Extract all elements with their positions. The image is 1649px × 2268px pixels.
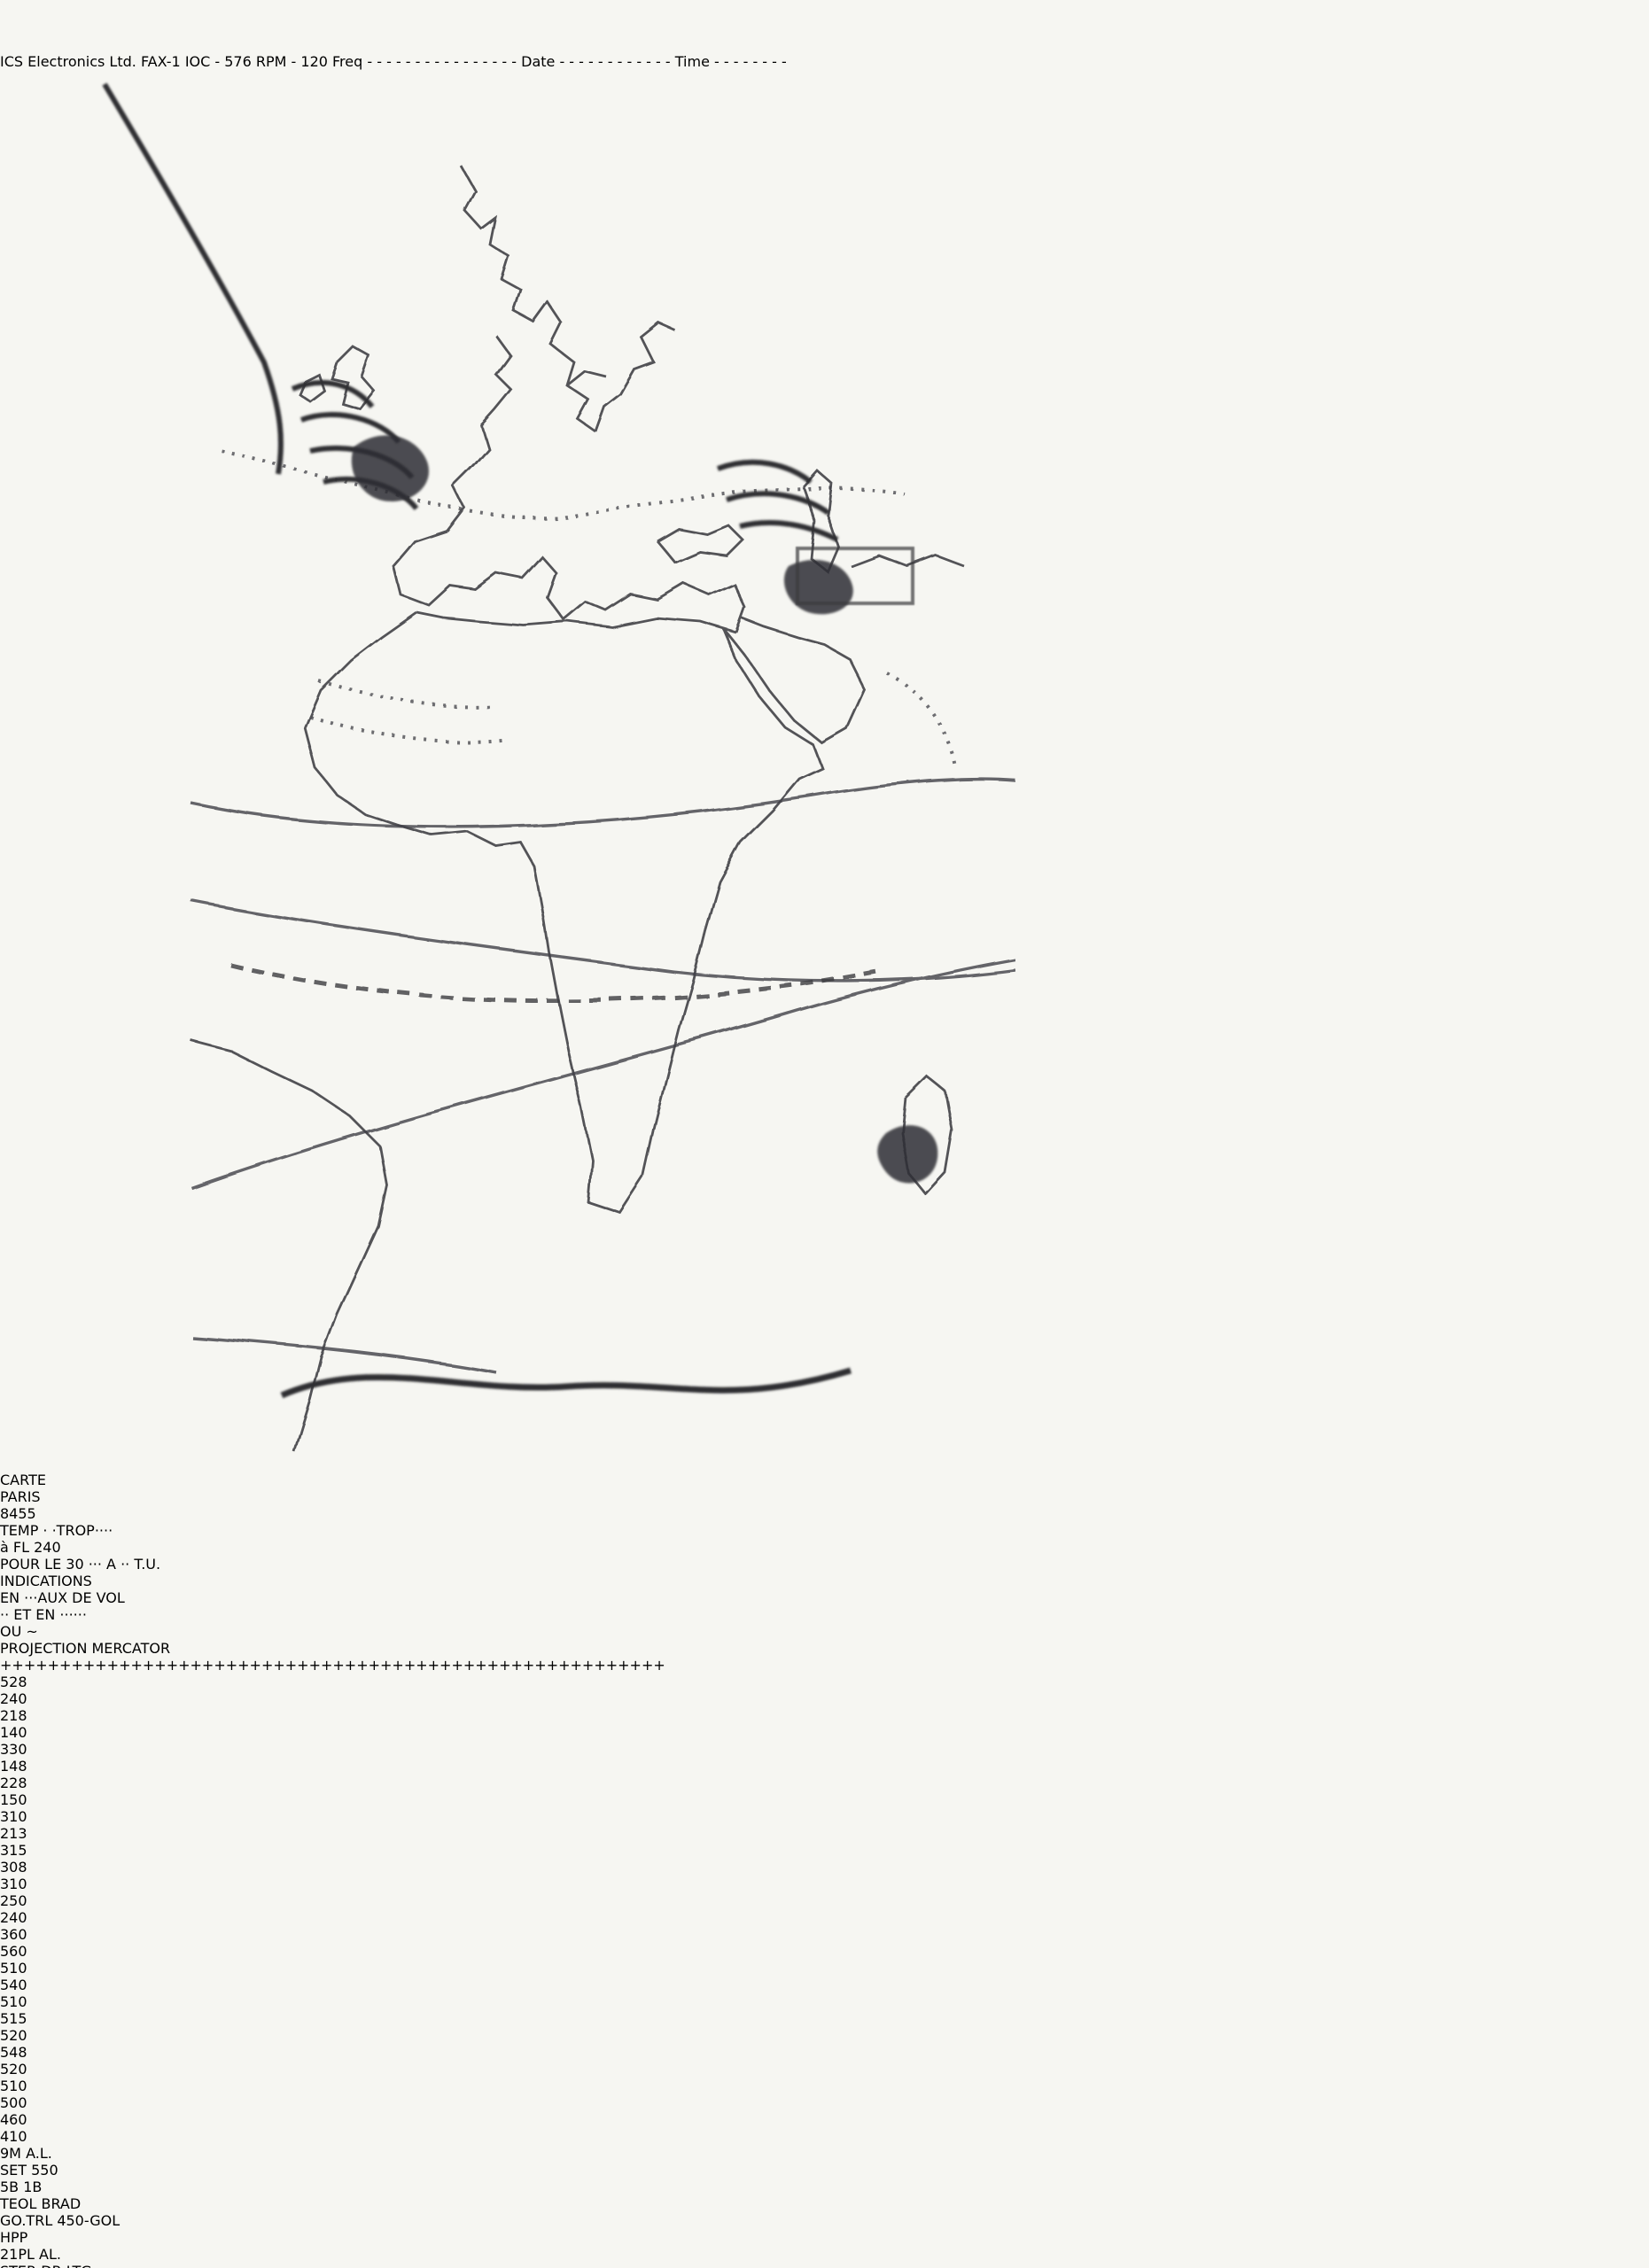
grid-cross: +	[226, 1657, 237, 1674]
grid-cross: +	[143, 1657, 154, 1674]
grid-cross: +	[309, 1657, 321, 1674]
grid-cross: +	[547, 1657, 558, 1674]
projection-label: PROJECTION MERCATOR	[0, 1640, 1649, 1657]
grid-cross: +	[285, 1657, 297, 1674]
map-annotation: SET 550	[0, 2162, 1649, 2179]
map-value-box: 308	[0, 1859, 1649, 1876]
map-value-box: 500	[0, 2094, 1649, 2111]
map-value-box: 240	[0, 1690, 1649, 1707]
grid-cross: +	[510, 1657, 522, 1674]
map-value-box: 460	[0, 2111, 1649, 2128]
map-value-box: 548	[0, 2044, 1649, 2061]
map-value-box: 540	[0, 1977, 1649, 1993]
grid-cross: +	[451, 1657, 463, 1674]
grid-cross: +	[261, 1657, 273, 1674]
front-scribbles	[105, 84, 851, 1395]
grid-cross: +	[191, 1657, 202, 1674]
grid-cross: +	[606, 1657, 618, 1674]
map-annotation: 9M A.L.	[0, 2145, 1649, 2162]
scan-ink-blob	[0, 35, 115, 53]
scanned-fax-page: ICS Electronics Ltd. FAX-1 IOC - 576 RPM…	[0, 0, 1649, 2268]
map-value-box: 510	[0, 2078, 1649, 2094]
grid-cross: +	[321, 1657, 332, 1674]
map-annotation: TEOL BRAD	[0, 2195, 1649, 2212]
map-value-box: 330	[0, 1741, 1649, 1758]
map-value-box: 528	[0, 1674, 1649, 1690]
grid-cross: +	[499, 1657, 510, 1674]
grid-cross: +	[12, 1657, 23, 1674]
grid-cross: +	[653, 1657, 665, 1674]
grid-cross: +	[95, 1657, 106, 1674]
legend-line: POUR LE 30 ··· A ·· T.U.	[0, 1556, 1649, 1573]
grid-cross: +	[439, 1657, 451, 1674]
grid-cross: +	[618, 1657, 629, 1674]
grid-cross: +	[416, 1657, 427, 1674]
map-value-box: 510	[0, 1960, 1649, 1977]
grid-cross: +	[273, 1657, 284, 1674]
legend-station-line1: CARTE	[0, 1472, 1649, 1488]
grid-cross: +	[642, 1657, 653, 1674]
grid-cross: +	[237, 1657, 249, 1674]
map-value-box: 250	[0, 1892, 1649, 1909]
grid-cross: +	[380, 1657, 392, 1674]
map-value-box: 520	[0, 2027, 1649, 2044]
grid-cross: +	[214, 1657, 225, 1674]
map-value-box: 360	[0, 1926, 1649, 1943]
grid-cross: +	[83, 1657, 95, 1674]
weather-map-frame: CARTE PARIS 8455 TEMP · ·TROP····à FL 24…	[0, 70, 1649, 2268]
grid-cross: +	[571, 1657, 582, 1674]
map-value-box: 510	[0, 1993, 1649, 2010]
grid-cross: +	[345, 1657, 356, 1674]
legend-line: OU ~	[0, 1623, 1649, 1640]
map-annotation: 410	[0, 2128, 1649, 2145]
grid-cross: +	[297, 1657, 308, 1674]
legend-header: CARTE PARIS 8455	[0, 1472, 1649, 1522]
grid-cross: +	[534, 1657, 546, 1674]
grid-cross: +	[0, 1657, 12, 1674]
grid-cross: +	[35, 1657, 47, 1674]
grid-cross: +	[107, 1657, 119, 1674]
map-value-box: 515	[0, 2010, 1649, 2027]
grid-cross: +	[594, 1657, 605, 1674]
grid-cross: +	[48, 1657, 59, 1674]
map-value-box: 310	[0, 1808, 1649, 1825]
dotted-contours	[222, 451, 957, 770]
map-value-box: 315	[0, 1842, 1649, 1859]
grid-cross: +	[250, 1657, 261, 1674]
map-value-box: 148	[0, 1758, 1649, 1775]
grid-cross: +	[630, 1657, 642, 1674]
grid-cross: +	[475, 1657, 486, 1674]
grid-cross: +	[582, 1657, 594, 1674]
map-annotation: 5B 1B	[0, 2179, 1649, 2195]
map-drawing	[0, 70, 1015, 1468]
legend-line: ·· ET EN ······	[0, 1606, 1649, 1623]
grid-cross: +	[59, 1657, 71, 1674]
chart-number: 8455	[0, 1505, 1649, 1522]
grid-cross: +	[154, 1657, 166, 1674]
coastlines	[191, 166, 964, 1452]
grid-cross: +	[24, 1657, 35, 1674]
map-value-box: 213	[0, 1825, 1649, 1842]
grid-cross: +	[202, 1657, 214, 1674]
map-annotation: 21PL AL.	[0, 2246, 1649, 2263]
map-value-box: 560	[0, 1943, 1649, 1960]
legend-station: CARTE PARIS	[0, 1472, 1649, 1505]
grid-cross: +	[356, 1657, 368, 1674]
map-value-box: 228	[0, 1775, 1649, 1791]
grid-cross: +	[167, 1657, 178, 1674]
fax-header-strip: ICS Electronics Ltd. FAX-1 IOC - 576 RPM…	[0, 53, 1649, 70]
grid-cross: +	[71, 1657, 82, 1674]
map-value-box: 150	[0, 1791, 1649, 1808]
legend-line: TEMP · ·TROP····	[0, 1522, 1649, 1539]
legend-station-line2: PARIS	[0, 1488, 1649, 1505]
legend-line: à FL 240	[0, 1539, 1649, 1556]
map-value-box: 520	[0, 2061, 1649, 2078]
grid-cross: +	[404, 1657, 416, 1674]
grid-cross: +	[428, 1657, 439, 1674]
legend-line: EN ···AUX DE VOL	[0, 1589, 1649, 1606]
grid-cross: +	[487, 1657, 499, 1674]
contour-lines	[191, 780, 1015, 1372]
map-annotation: STER DR LTG.	[0, 2263, 1649, 2268]
grid-cross: +	[369, 1657, 380, 1674]
grid-cross: +	[558, 1657, 570, 1674]
map-value-box: 310	[0, 1876, 1649, 1892]
legend-text-lines: TEMP · ·TROP····à FL 240POUR LE 30 ··· A…	[0, 1522, 1649, 1640]
grid-cross: +	[523, 1657, 534, 1674]
map-value-box: 240	[0, 1909, 1649, 1926]
grid-cross: +	[119, 1657, 130, 1674]
grid-cross: +	[392, 1657, 403, 1674]
grid-cross: +	[332, 1657, 344, 1674]
map-value-box: 218	[0, 1707, 1649, 1724]
map-content: CARTE PARIS 8455 TEMP · ·TROP····à FL 24…	[0, 70, 1649, 2268]
map-annotation: HPP	[0, 2229, 1649, 2246]
chart-legend-box: CARTE PARIS 8455 TEMP · ·TROP····à FL 24…	[0, 1472, 1649, 1640]
grid-cross: +	[178, 1657, 190, 1674]
grid-cross: +	[463, 1657, 475, 1674]
grid-cross: +	[130, 1657, 142, 1674]
map-annotation: GO.TRL 450-GOL	[0, 2212, 1649, 2229]
scan-ink-blob	[0, 0, 85, 35]
legend-line: INDICATIONS	[0, 1573, 1649, 1589]
map-value-box: 140	[0, 1724, 1649, 1741]
